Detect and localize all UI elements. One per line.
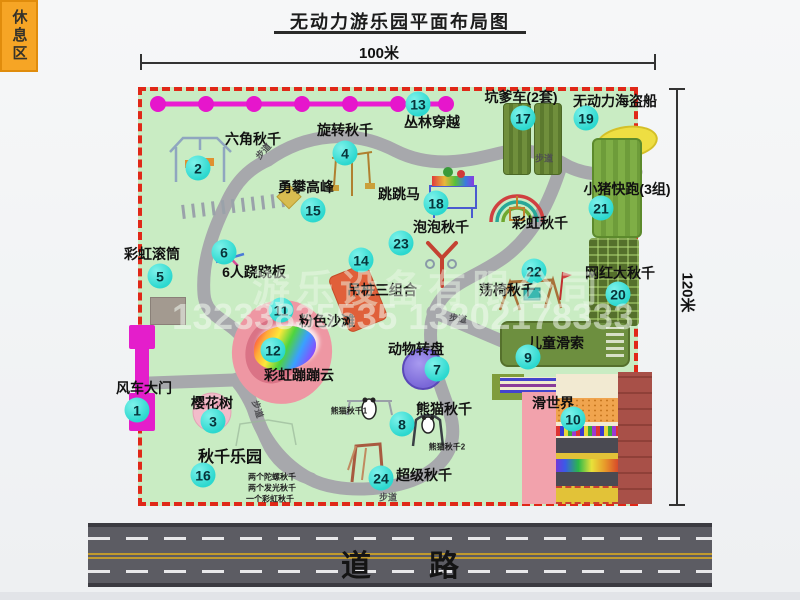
poi-label-bubble-swing: 泡泡秋千: [413, 217, 469, 237]
poi-label-rainbow-cloud: 彩虹蹦蹦云: [264, 365, 334, 385]
poi-badge-10: 10: [561, 407, 586, 432]
walkway-label-2: 步道: [535, 152, 553, 165]
dimension-tick-right-top: [669, 88, 685, 90]
page-background: 无动力游乐园平面布局图 100米 120米: [0, 0, 800, 600]
poi-label-net-swing: 网红大秋千: [585, 263, 655, 283]
dimension-tick-top-left: [140, 54, 142, 70]
road: 道路: [88, 523, 712, 587]
poi-badge-1: 1: [125, 398, 150, 423]
poi-note-swing-park-2: 两个发光秋千: [248, 483, 296, 494]
poi-badge-6: 6: [212, 240, 237, 265]
slide-world-dark-band-1: [556, 438, 618, 453]
poi-badge-17: 17: [511, 106, 536, 131]
slide-world-wavy-band: [556, 486, 618, 504]
poi-label-seesaw: 6人跷跷板: [222, 262, 286, 282]
road-label: 道路: [88, 541, 712, 585]
poi-badge-13: 13: [406, 92, 431, 117]
poi-badge-5: 5: [148, 264, 173, 289]
bottom-margin-strip: [0, 592, 800, 600]
poi-label-climbing-peak: 勇攀高峰: [278, 177, 334, 197]
poi-label-super-swing: 超级秋千: [396, 465, 452, 485]
dimension-label-height: 120米: [678, 272, 699, 312]
poi-label-hanging-pile-combo: 吊桩三组合: [347, 280, 417, 300]
slide-world-dark-band-2: [556, 472, 618, 486]
windmill-gate-top: [129, 325, 155, 349]
poi-label-rotating-swing: 旋转秋千: [317, 120, 373, 140]
poi-badge-16: 16: [191, 463, 216, 488]
gate-photo-thumb: [150, 297, 186, 325]
poi-badge-11: 11: [269, 298, 294, 323]
poi-badge-14: 14: [349, 248, 374, 273]
road-lane-line-top: [88, 537, 712, 540]
poi-sublabel-panda-swing-2: 熊猫秋千2: [429, 442, 465, 453]
poi-label-pink-beach: 粉色沙滩: [299, 311, 355, 331]
poi-label-hexagon-swing: 六角秋千: [225, 129, 281, 149]
slide-world-maroon-strip: [618, 372, 652, 504]
poi-badge-20: 20: [606, 282, 631, 307]
poi-label-swing-chair: 荡椅秋千: [479, 280, 535, 300]
walkway-label-5: 步道: [379, 491, 397, 504]
zipline-ladder-icon: [606, 327, 624, 357]
poi-note-swing-park-3: 一个彩虹秋千: [246, 494, 294, 505]
poi-badge-9: 9: [516, 345, 541, 370]
poi-label-jumping-horse: 跳跳马: [378, 184, 420, 204]
poi-badge-22: 22: [522, 259, 547, 284]
poi-badge-3: 3: [201, 409, 226, 434]
poi-badge-8: 8: [390, 412, 415, 437]
poi-badge-15: 15: [301, 198, 326, 223]
poi-label-troll-car: 坑爹车(2套): [484, 87, 557, 107]
walkway-label-3: 步道: [448, 310, 468, 325]
poi-label-windmill-gate: 风车大门: [116, 378, 172, 398]
poi-badge-18: 18: [424, 191, 449, 216]
poi-badge-4: 4: [333, 141, 358, 166]
poi-badge-24: 24: [369, 466, 394, 491]
poi-badge-21: 21: [589, 196, 614, 221]
dimension-label-width: 100米: [355, 42, 403, 63]
dimension-tick-top-right: [654, 54, 656, 70]
slide-world-rainbow-band: [552, 459, 618, 472]
poi-badge-19: 19: [574, 106, 599, 131]
dimension-tick-right-bottom: [669, 504, 685, 506]
poi-badge-23: 23: [389, 231, 414, 256]
poi-label-panda-swing: 熊猫秋千: [416, 399, 472, 419]
poi-label-rainbow-swing: 彩虹秋千: [512, 213, 568, 233]
poi-sublabel-panda-swing-1: 熊猫秋千1: [331, 406, 367, 417]
poi-note-swing-park-1: 两个陀螺秋千: [248, 472, 296, 483]
poi-badge-12: 12: [261, 338, 286, 363]
poi-badge-7: 7: [425, 357, 450, 382]
poi-badge-2: 2: [186, 156, 211, 181]
poi-label-rainbow-roller: 彩虹滚筒: [124, 244, 180, 264]
title-underline: [274, 31, 526, 34]
